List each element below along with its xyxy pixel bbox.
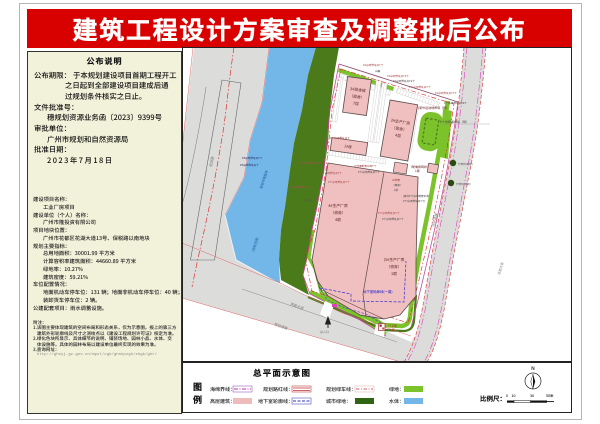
svg-text:10: 10 <box>512 394 516 399</box>
svg-text:30: 30 <box>530 394 534 399</box>
svg-text:50米: 50米 <box>546 394 554 399</box>
svg-text:0: 0 <box>506 394 508 399</box>
svg-text:N: N <box>531 365 535 372</box>
